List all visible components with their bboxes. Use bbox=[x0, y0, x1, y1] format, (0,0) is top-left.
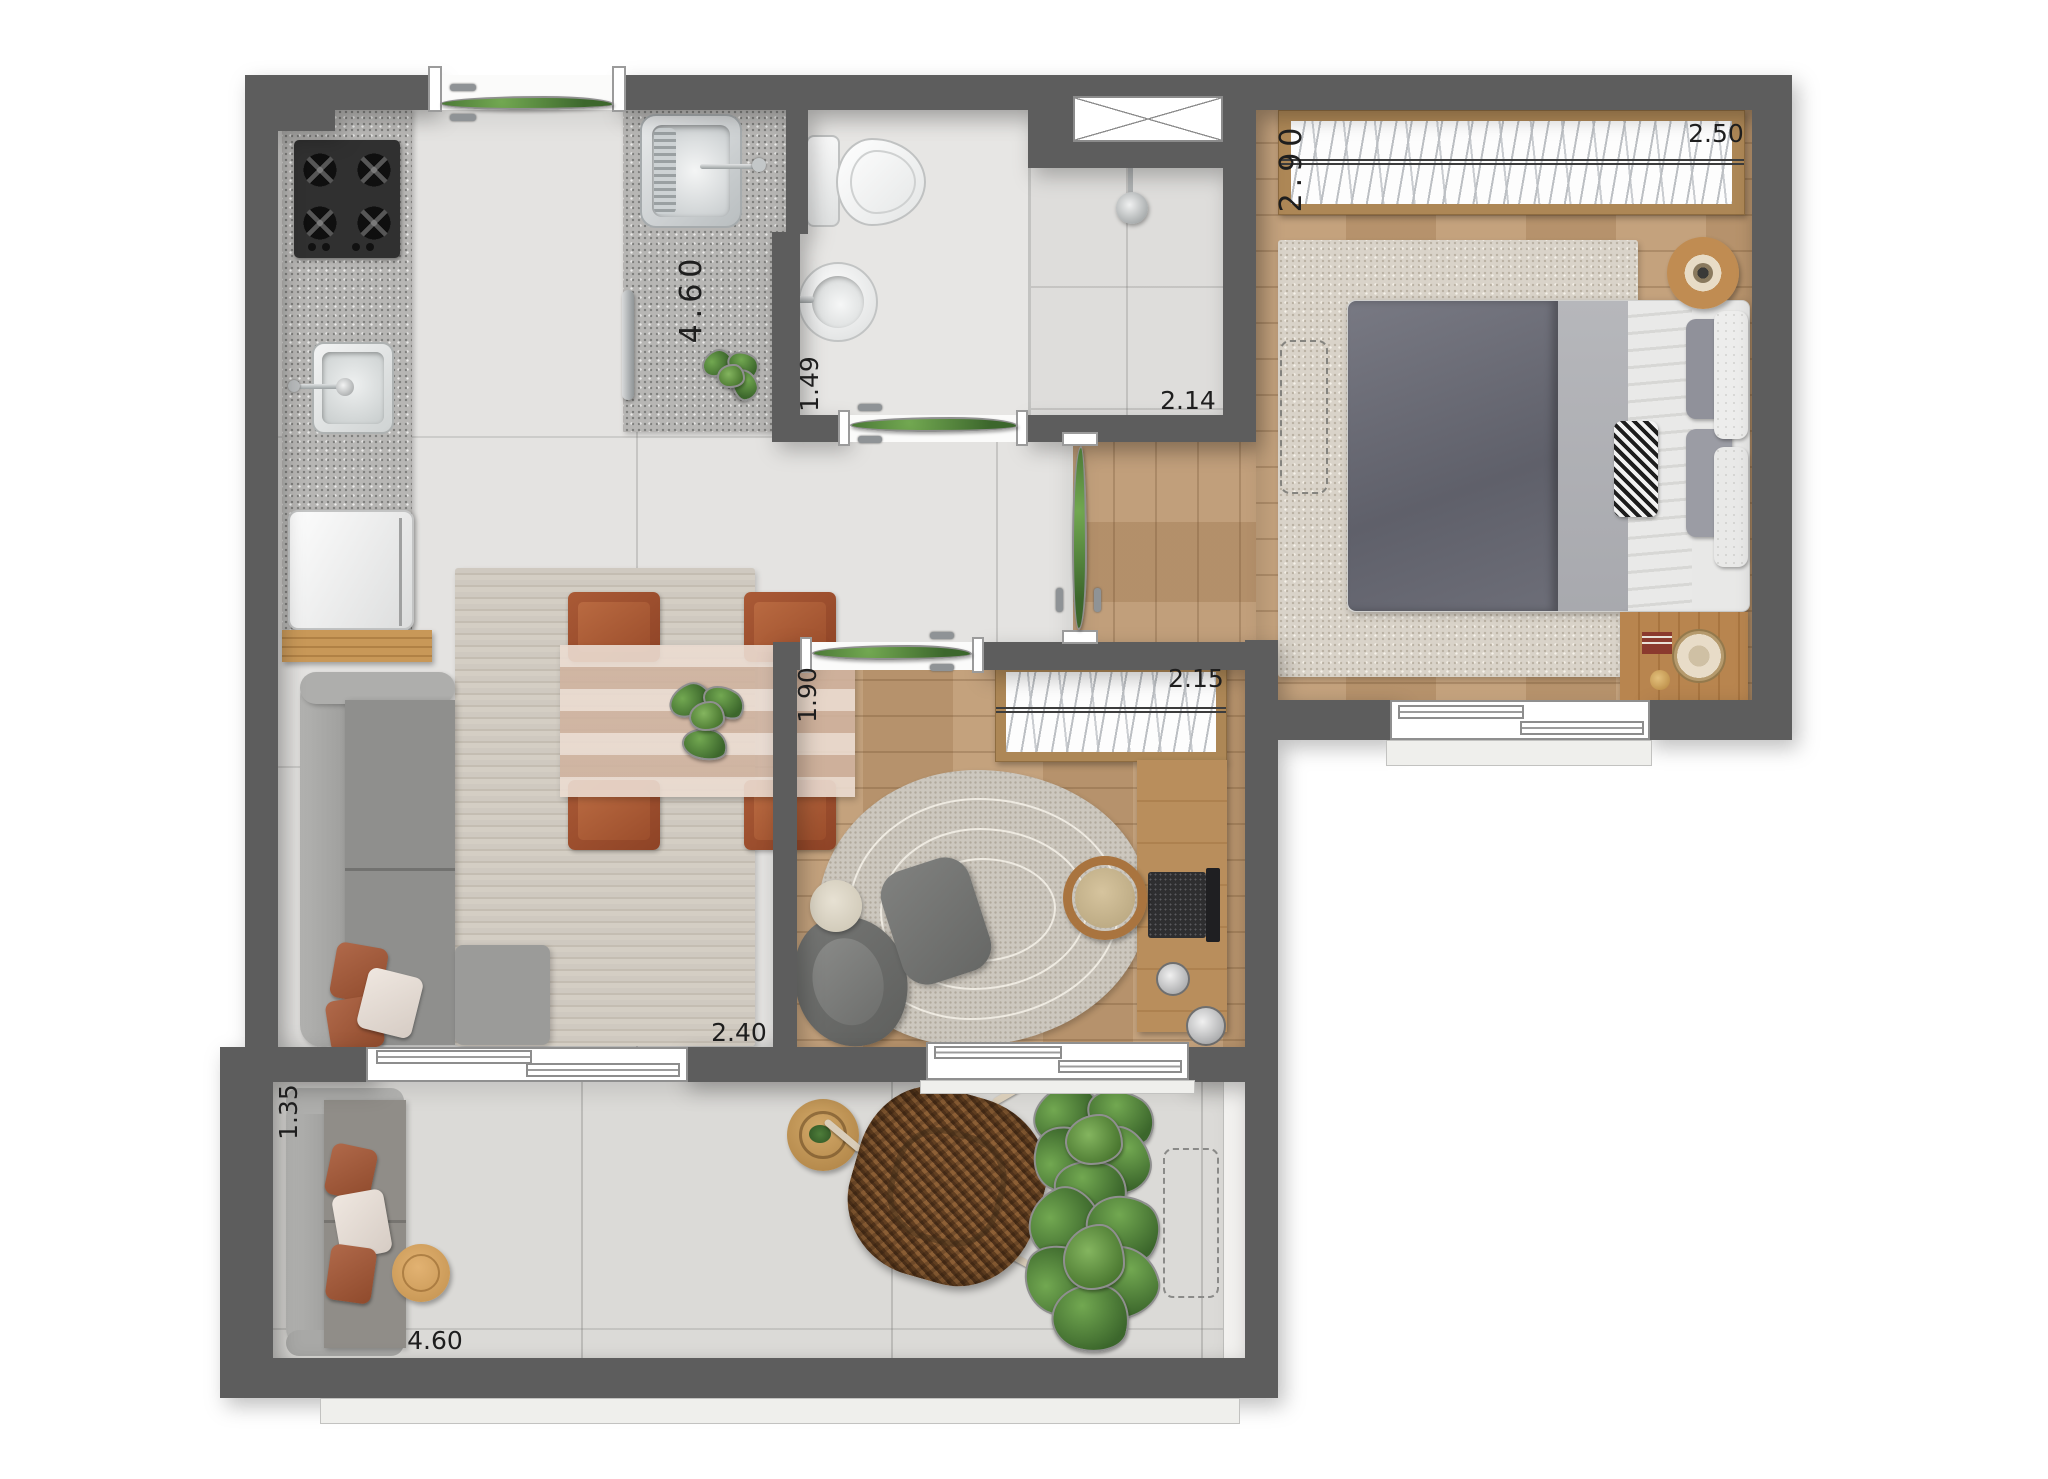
shower-icon bbox=[1116, 192, 1148, 224]
burner-icon bbox=[357, 206, 391, 240]
door-jamb bbox=[1016, 410, 1028, 446]
knob-icon bbox=[366, 243, 374, 251]
door-handle-icon bbox=[450, 114, 476, 121]
double-bed-icon bbox=[1347, 300, 1750, 612]
side-table-icon bbox=[810, 880, 862, 932]
knob-icon bbox=[352, 243, 360, 251]
washboard bbox=[654, 128, 676, 214]
door-handle-icon bbox=[930, 664, 954, 671]
floor-plan: 4.60 2.90 2.50 1.49 2.14 1.90 2.15 2.40 … bbox=[0, 0, 2048, 1479]
bathroom-door-icon bbox=[850, 417, 1018, 432]
tray-icon bbox=[1672, 629, 1726, 683]
nightstand-icon bbox=[1620, 612, 1748, 700]
knob-icon bbox=[322, 243, 330, 251]
wall bbox=[1645, 700, 1792, 740]
pillow bbox=[1714, 447, 1748, 567]
vent-window-icon bbox=[1073, 96, 1223, 142]
bedroom-door-icon bbox=[1072, 446, 1087, 630]
leaf bbox=[717, 364, 744, 389]
dimension-label: 2.15 bbox=[1141, 664, 1251, 694]
wall bbox=[786, 108, 808, 234]
balcony-sill bbox=[320, 1398, 1240, 1424]
laundry-sink-icon bbox=[640, 114, 742, 228]
cooktop-icon bbox=[294, 140, 400, 258]
window-sill bbox=[920, 1080, 1195, 1094]
wardrobe-rail bbox=[996, 707, 1226, 713]
table-ring bbox=[402, 1254, 440, 1292]
sliding-door-panel bbox=[526, 1063, 680, 1077]
leaf bbox=[689, 701, 725, 731]
dimension-label: 4.60 bbox=[677, 218, 707, 378]
wall bbox=[1023, 415, 1256, 442]
wall bbox=[220, 1358, 1278, 1398]
door-jamb bbox=[428, 66, 442, 112]
towel-rail-icon bbox=[622, 290, 634, 400]
plant-icon bbox=[700, 350, 762, 412]
faucet-icon bbox=[288, 380, 300, 392]
door-jamb bbox=[1062, 630, 1098, 644]
dimension-label: 2.14 bbox=[1133, 386, 1243, 416]
dimension-label: 2.90 bbox=[1277, 87, 1307, 247]
sliding-door-panel bbox=[376, 1050, 532, 1064]
faucet-icon bbox=[700, 164, 760, 169]
toilet-icon bbox=[806, 135, 840, 227]
plant-icon bbox=[666, 684, 748, 760]
wall bbox=[682, 1047, 932, 1082]
door-handle-icon bbox=[1094, 588, 1101, 612]
shelf-icon bbox=[282, 630, 432, 662]
shower-glass-partition bbox=[1028, 168, 1031, 415]
laptop-icon bbox=[1148, 872, 1206, 938]
dimension-label: 2.40 bbox=[684, 1018, 794, 1048]
window-sill bbox=[1386, 740, 1652, 766]
book-icon bbox=[1642, 632, 1672, 654]
door-jamb bbox=[1062, 432, 1098, 446]
pillow bbox=[324, 1243, 377, 1305]
sofa-chaise bbox=[455, 945, 550, 1045]
washer-icon bbox=[288, 510, 414, 630]
faucet-icon bbox=[336, 378, 354, 396]
basin-bowl bbox=[812, 276, 864, 328]
chair-cushion bbox=[803, 931, 892, 1033]
bedroom-window-panel bbox=[1520, 721, 1644, 735]
wardrobe-rail bbox=[1279, 159, 1744, 165]
burner-icon bbox=[303, 206, 337, 240]
laptop-icon bbox=[1206, 868, 1220, 942]
ac-unit-space-icon bbox=[1163, 1148, 1219, 1298]
door-jamb bbox=[838, 410, 850, 446]
wall bbox=[1278, 700, 1395, 740]
dimension-label: 1.90 bbox=[793, 640, 823, 750]
duvet bbox=[1348, 301, 1558, 611]
door-jamb bbox=[972, 637, 984, 673]
leaf bbox=[1065, 1114, 1123, 1165]
desk-accessory-icon bbox=[1156, 962, 1190, 996]
burner-icon bbox=[303, 153, 337, 187]
sliding-window-panel bbox=[1058, 1060, 1182, 1073]
sliding-window-panel bbox=[934, 1046, 1062, 1059]
pillow bbox=[1714, 311, 1748, 439]
balcony-right-pillar bbox=[1223, 1082, 1246, 1358]
toilet-rim bbox=[850, 150, 916, 214]
dimension-label: 2.50 bbox=[1661, 119, 1771, 149]
faucet-icon bbox=[752, 158, 766, 172]
dimension-label: 1.35 bbox=[274, 1057, 304, 1167]
office-door-icon bbox=[812, 645, 972, 660]
entrance-door-icon bbox=[440, 96, 614, 110]
bedroom-hall-floor bbox=[1073, 442, 1256, 647]
chair-seat bbox=[578, 790, 650, 840]
wicker-weave bbox=[876, 1116, 1017, 1257]
wall bbox=[1245, 640, 1278, 1082]
plant-icon bbox=[1024, 1188, 1164, 1352]
accent-pillow bbox=[1614, 421, 1658, 517]
desk-accessory-icon bbox=[1186, 1006, 1226, 1046]
washer-door-edge bbox=[399, 518, 402, 626]
wall bbox=[1183, 1047, 1278, 1082]
wall bbox=[1245, 1082, 1278, 1398]
tray-center bbox=[1693, 263, 1713, 283]
dimension-label: 1.49 bbox=[795, 329, 825, 439]
nightstand-tray-icon bbox=[1667, 237, 1739, 309]
burner-icon bbox=[357, 153, 391, 187]
door-handle-icon bbox=[930, 632, 954, 639]
door-handle-icon bbox=[858, 404, 882, 411]
cup-icon bbox=[1650, 670, 1670, 690]
wall bbox=[220, 1047, 273, 1398]
door-handle-icon bbox=[1056, 588, 1063, 612]
wall bbox=[245, 108, 278, 1047]
future-furniture-outline bbox=[1280, 340, 1328, 494]
side-table-icon bbox=[392, 1244, 450, 1302]
door-handle-icon bbox=[450, 84, 476, 91]
door-handle-icon bbox=[858, 436, 882, 443]
desk-chair-icon bbox=[1075, 868, 1135, 928]
bedroom-window-panel bbox=[1398, 705, 1524, 719]
door-jamb bbox=[612, 66, 626, 112]
knob-icon bbox=[308, 243, 316, 251]
dimension-label: 4.60 bbox=[380, 1326, 490, 1356]
wall bbox=[1752, 75, 1792, 740]
